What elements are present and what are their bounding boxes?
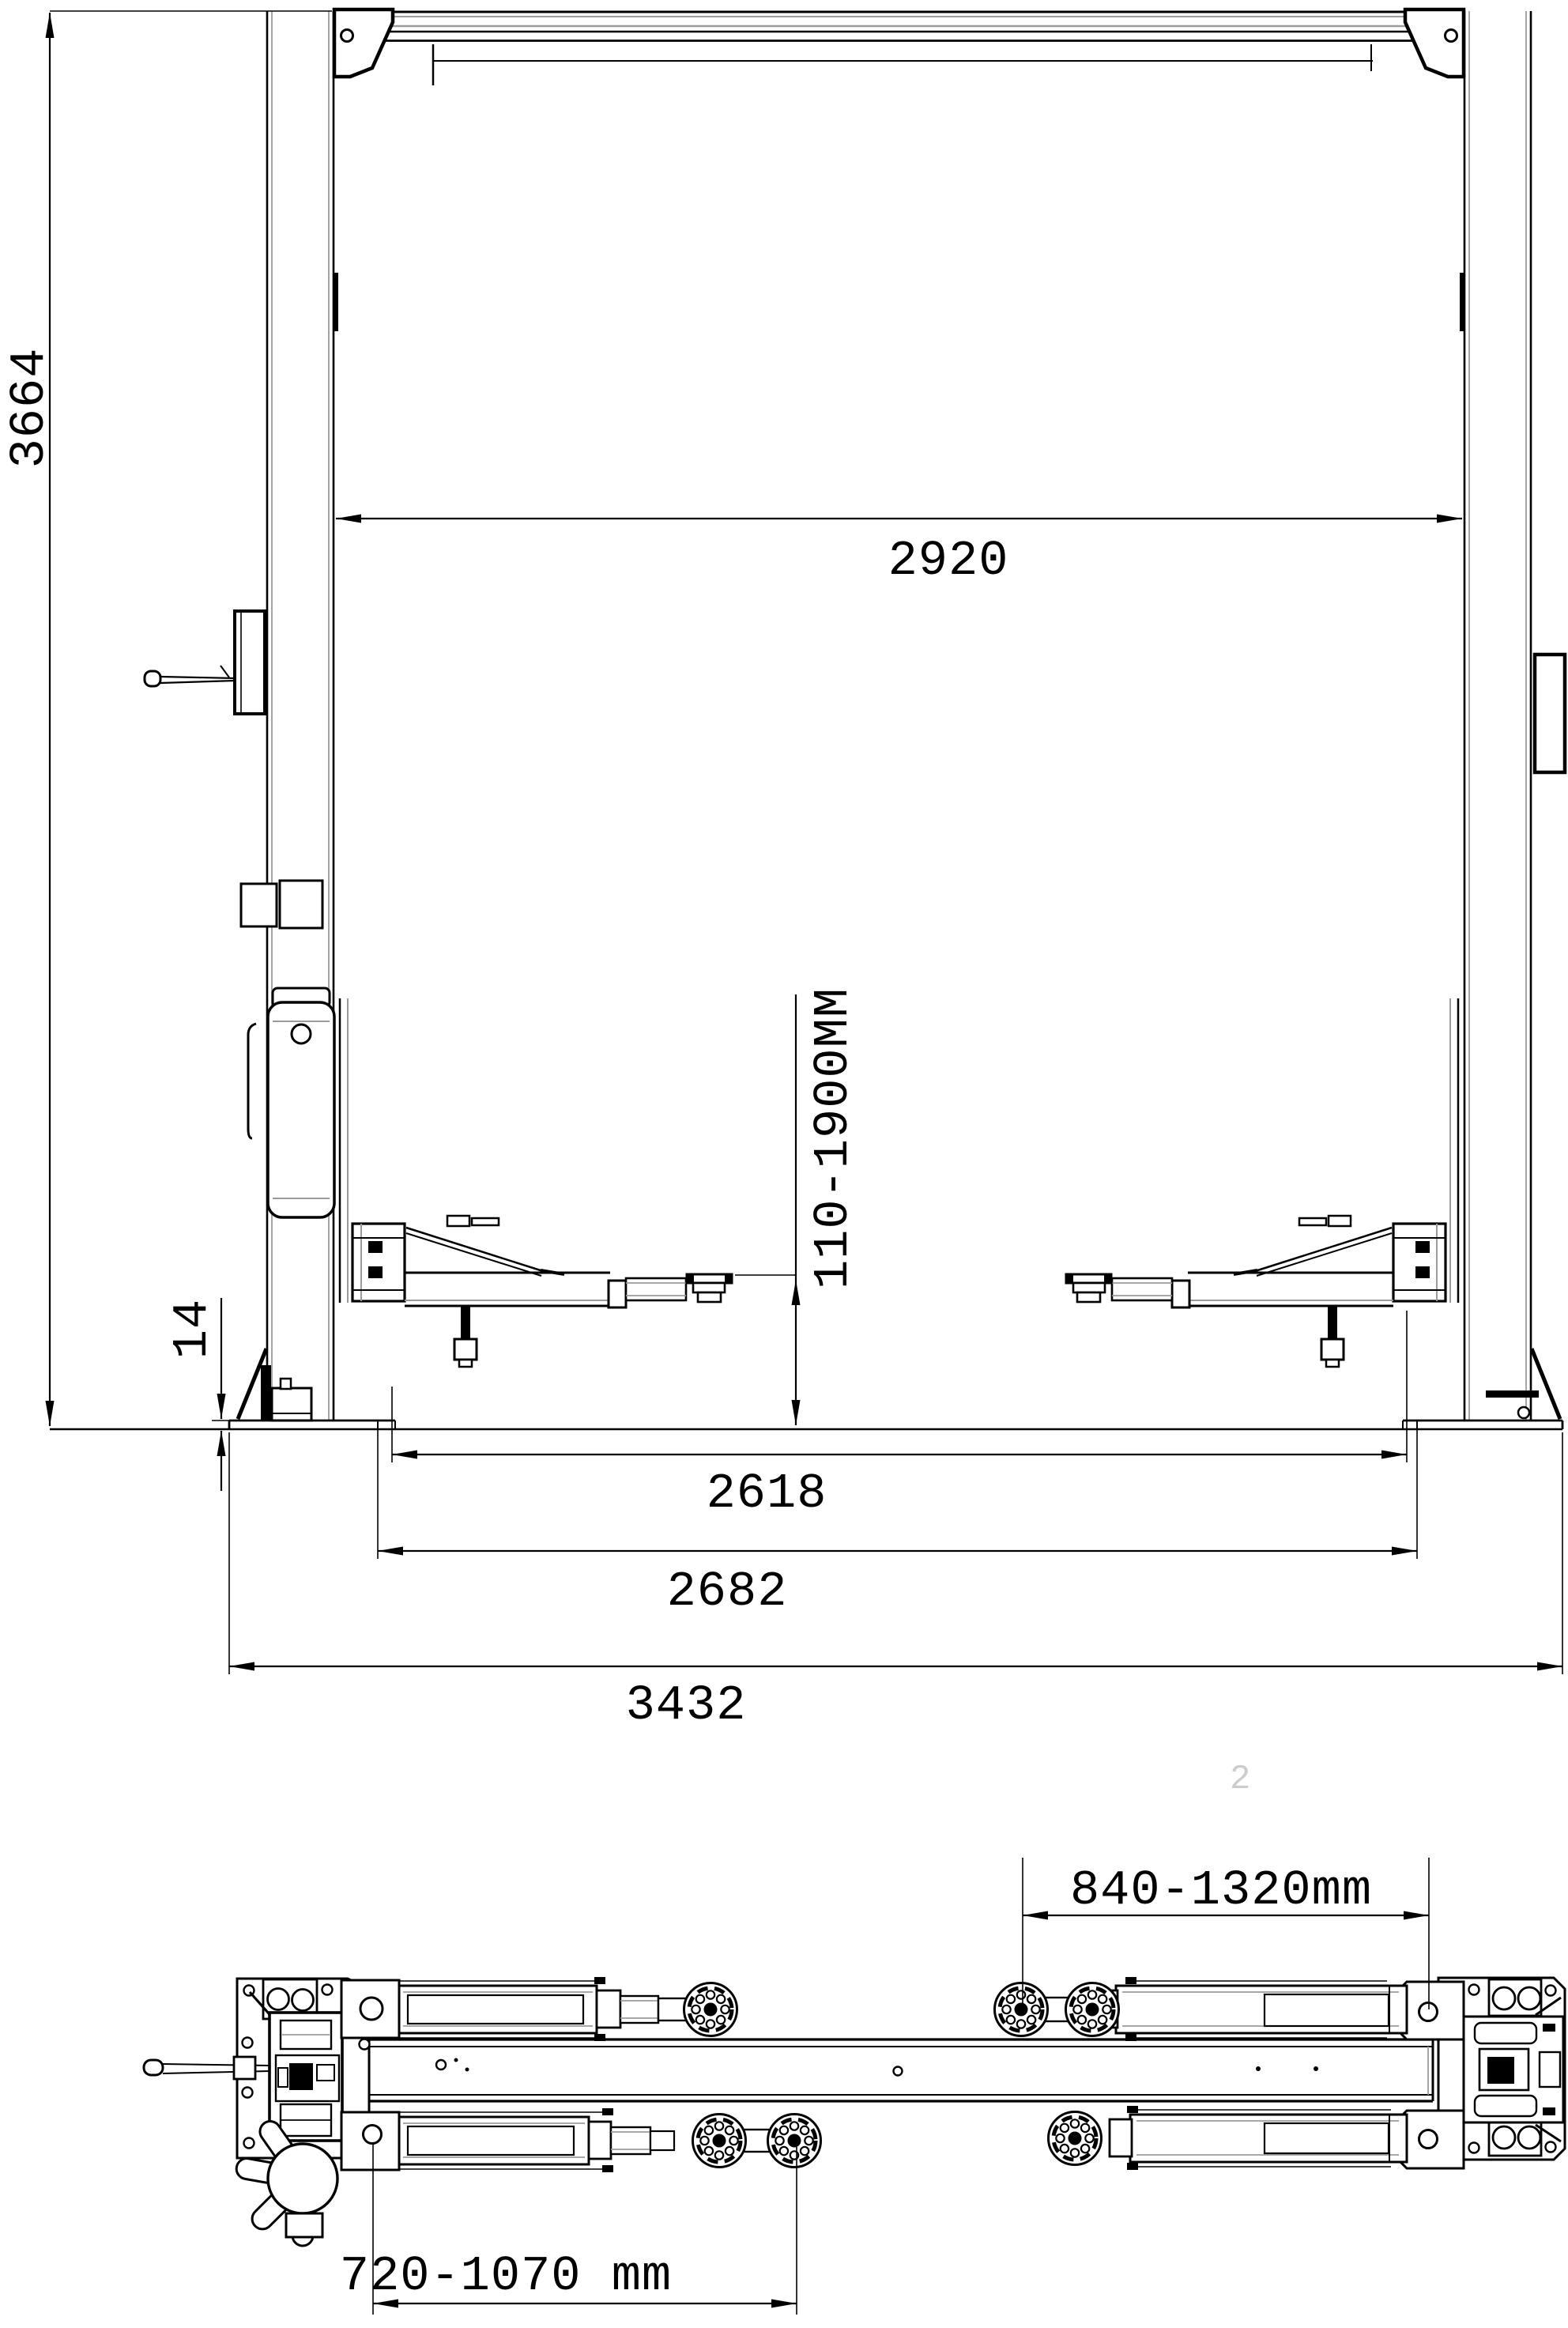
front-view: 3664 2920 110-1900MM 14 2618 2682 (2, 9, 1565, 1799)
bracket-hole-icon (341, 30, 353, 42)
pad-icon (768, 2115, 821, 2168)
dim-overall-width-label: 3432 (626, 1677, 747, 1734)
lift-technical-drawing: 3664 2920 110-1900MM 14 2618 2682 (0, 0, 1568, 2328)
hydraulic-power-unit (248, 988, 334, 1217)
beam-bracket-left (334, 9, 393, 77)
control-box (145, 611, 265, 714)
dim-front-arm-span-label: 720-1070 mm (340, 2248, 672, 2304)
pad-icon (1049, 2112, 1102, 2165)
page-watermark: 2 (1230, 1760, 1250, 1799)
right-carriage (1450, 998, 1458, 1303)
left-arm (352, 1216, 732, 1367)
lever-knob-icon (145, 671, 160, 686)
dim-rear-arm-span-label: 840-1320mm (1070, 1862, 1372, 1919)
plan-arm-rear-left (341, 1977, 737, 2041)
dim-drive-through-label: 2682 (667, 1564, 788, 1620)
dim-baseplate-thickness-label: 14 (164, 1299, 220, 1359)
plan-view: 840-1320mm 720-1070 mm (144, 1858, 1565, 2315)
dim-post-clearance-label: 2920 (888, 533, 1009, 589)
pad-icon (995, 1983, 1048, 2036)
handle-knob-icon (144, 2060, 163, 2075)
front-dimensions: 3664 2920 110-1900MM 14 2618 2682 (2, 11, 1562, 1734)
left-post-boxes (241, 881, 322, 928)
beam-bracket-right (1405, 9, 1464, 77)
dim-lift-range-label: 110-1900MM (805, 987, 861, 1289)
right-post (1460, 11, 1531, 1421)
release-rod (248, 1024, 256, 1138)
dim-inner-width-label: 2618 (707, 1466, 827, 1522)
pad-icon (684, 1983, 737, 2036)
plan-arm-front-right (1049, 2106, 1464, 2170)
plan-left-post (144, 1979, 370, 2246)
pad-icon (693, 2115, 746, 2168)
plan-beam (350, 2039, 1433, 2101)
crossbeam (334, 12, 1464, 85)
right-post-box (1535, 655, 1565, 772)
dim-total-height-label: 3664 (2, 348, 58, 469)
right-gusset (1532, 1349, 1560, 1419)
left-carriage (340, 998, 348, 1303)
plan-arm-front-left (341, 2108, 821, 2172)
left-arm-pad (687, 1274, 732, 1302)
plan-dimensions: 840-1320mm 720-1070 mm (340, 1858, 1429, 2315)
right-arm (1066, 1216, 1445, 1367)
anchor-hole-icon (1518, 1407, 1529, 1418)
pad-icon (1066, 1983, 1119, 2036)
plan-arm-rear-right (995, 1977, 1464, 2041)
bracket-hole-icon (1445, 30, 1457, 42)
filler-cap-icon (292, 1024, 311, 1043)
right-arm-pad (1066, 1274, 1111, 1302)
